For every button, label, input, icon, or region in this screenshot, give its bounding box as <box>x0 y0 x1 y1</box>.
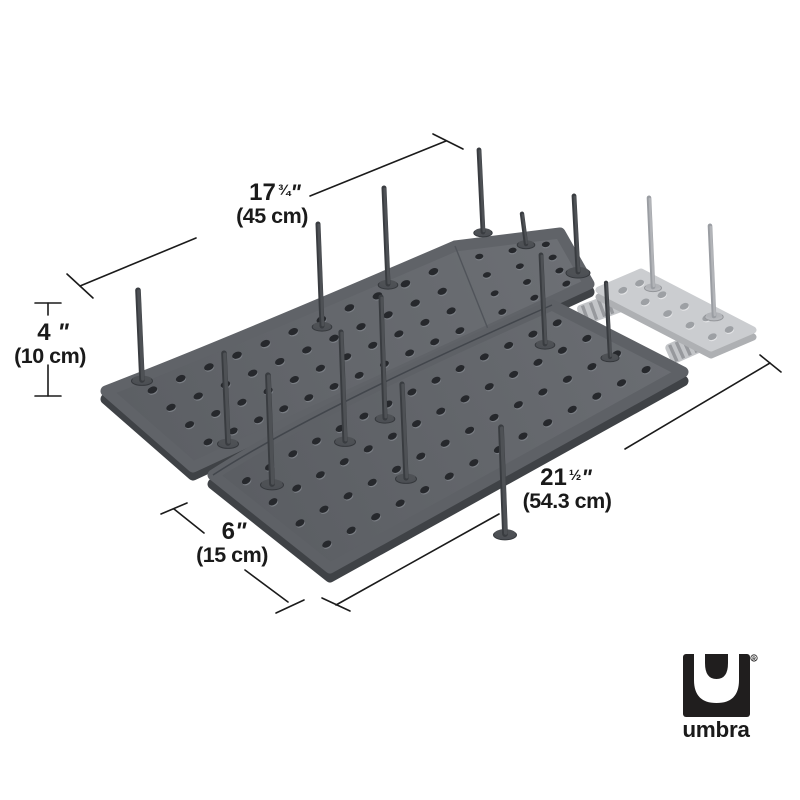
svg-text:R: R <box>752 656 756 662</box>
svg-text:(54.3 cm): (54.3 cm) <box>523 489 612 513</box>
svg-text:4 ": 4 " <box>37 319 69 346</box>
svg-text:17¾": 17¾" <box>249 179 301 206</box>
svg-text:(45 cm): (45 cm) <box>236 204 308 228</box>
svg-text:21½": 21½" <box>540 464 592 491</box>
svg-text:umbra: umbra <box>682 717 750 742</box>
svg-text:6": 6" <box>222 518 247 545</box>
svg-text:(10 cm): (10 cm) <box>14 344 86 368</box>
svg-text:(15 cm): (15 cm) <box>196 543 268 567</box>
